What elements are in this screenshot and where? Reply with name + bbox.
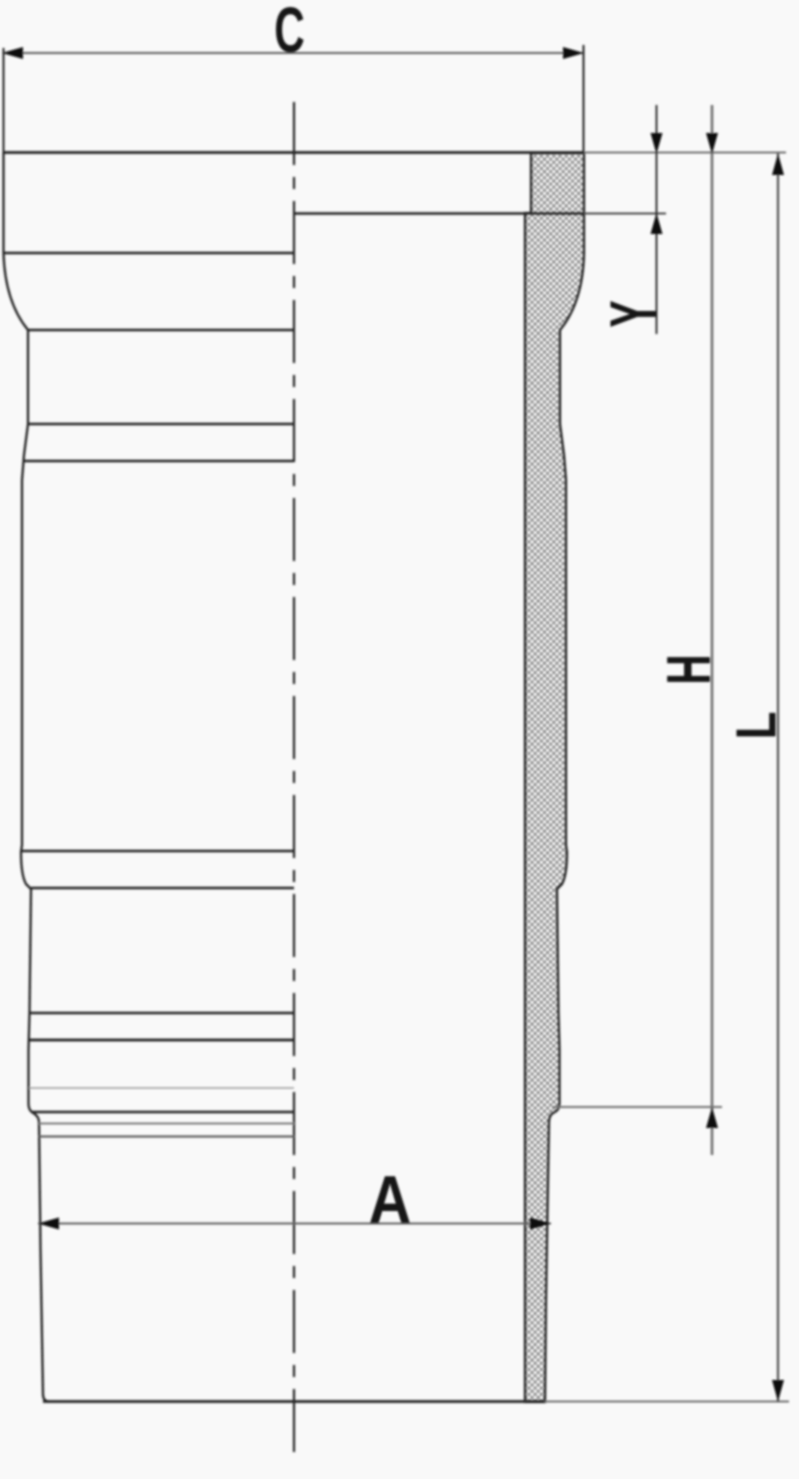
svg-text:Y: Y xyxy=(596,300,671,327)
svg-text:L: L xyxy=(724,712,788,740)
svg-text:C: C xyxy=(274,0,305,66)
svg-text:A: A xyxy=(369,1161,412,1238)
svg-text:H: H xyxy=(655,654,724,684)
